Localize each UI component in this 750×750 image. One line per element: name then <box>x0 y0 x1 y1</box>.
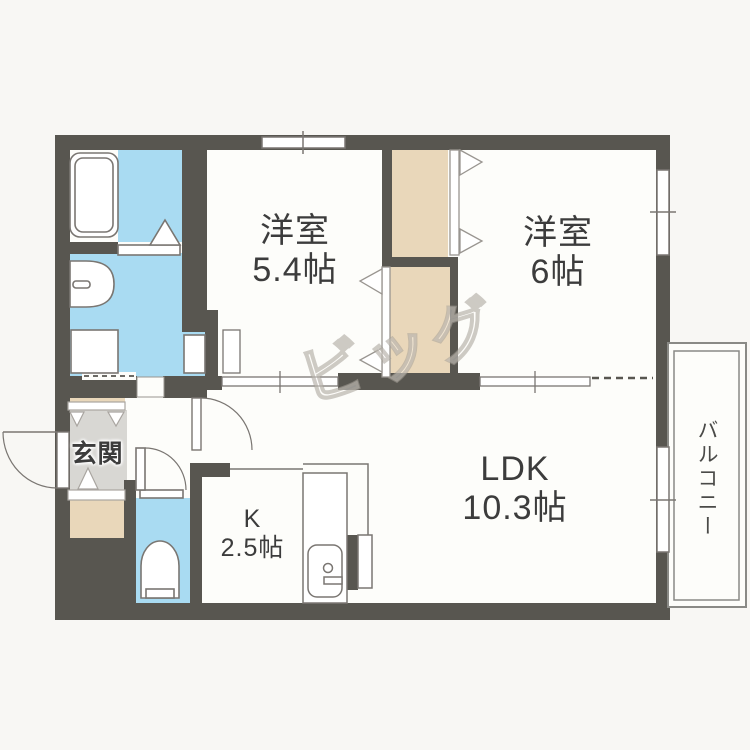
ldk-door-leaf <box>192 398 201 450</box>
entrance-step-bar-top <box>68 402 125 410</box>
bath-door-triangle-icon <box>150 220 180 245</box>
ldk-door-arc <box>201 398 252 450</box>
sliding-door-leaf-parked <box>223 330 240 373</box>
label-balcony: バルコニー <box>692 404 720 554</box>
label-western-room-1: 洋室 5.4帖 <box>205 212 385 291</box>
label-entrance: 玄関 <box>68 434 127 470</box>
toilet-door-threshold <box>140 490 183 498</box>
washroom-door-opening <box>137 377 164 397</box>
washbasin-faucet-icon <box>73 281 90 288</box>
entrance-triangle-1 <box>70 412 84 426</box>
western-room-1-name: 洋室 <box>205 212 385 251</box>
washing-machine-pan-right <box>184 335 205 373</box>
entrance-step-bar-bottom <box>68 490 125 500</box>
bath-door-threshold <box>118 245 180 255</box>
floorplan-canvas: 洋室 5.4帖 洋室 6帖 LDK 10.3帖 K 2.5帖 玄関 バルコニー … <box>0 0 750 750</box>
kitchen-name: K <box>205 505 300 534</box>
kitchen-side-unit <box>358 535 372 588</box>
closet-bottom-fold-triangle-2 <box>360 348 382 372</box>
toilet-door-arc <box>145 448 186 490</box>
kitchen-sink-drain <box>324 577 342 584</box>
closet-top-fold-triangle-1 <box>460 150 482 175</box>
fixtures-overlay <box>0 0 750 750</box>
label-kitchen: K 2.5帖 <box>205 505 300 563</box>
entrance-triangle-2 <box>108 412 124 426</box>
entrance-door-arc <box>3 432 57 488</box>
bathtub-icon <box>70 153 118 237</box>
kitchen-faucet-icon <box>324 564 333 573</box>
label-ldk: LDK 10.3帖 <box>395 450 635 529</box>
washing-machine-pan-left <box>71 330 118 373</box>
entrance-triangle-3 <box>78 468 98 489</box>
toilet-base <box>146 589 174 598</box>
ldk-size: 10.3帖 <box>395 489 635 528</box>
toilet-door-leaf <box>136 448 145 490</box>
western-room-2-name: 洋室 <box>460 214 656 253</box>
western-room-2-size: 6帖 <box>460 253 656 292</box>
ldk-name: LDK <box>395 450 635 489</box>
western-room-1-size: 5.4帖 <box>205 251 385 290</box>
closet-top-door-strip <box>450 150 459 255</box>
label-western-room-2: 洋室 6帖 <box>460 214 656 293</box>
kitchen-size: 2.5帖 <box>205 534 300 563</box>
